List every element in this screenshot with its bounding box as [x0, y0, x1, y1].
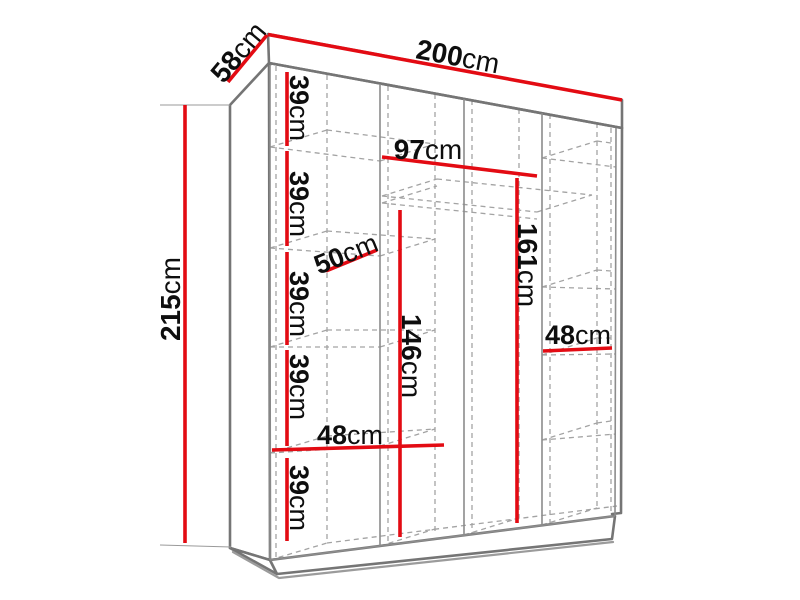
dim-right-width-label: 48cm [545, 320, 611, 350]
wardrobe-dimension-diagram: 200cm 58cm 215cm 39cm 39cm 39cm 39cm 39c… [0, 0, 800, 600]
dim-shelf-gap-4-label: 39cm [284, 354, 314, 420]
dim-middle-width-label: 97cm [394, 134, 462, 165]
dim-shelf-gap-2-label: 39cm [284, 171, 314, 237]
dim-left-width-label: 48cm [317, 420, 383, 450]
wardrobe-drawing: 200cm 58cm 215cm 39cm 39cm 39cm 39cm 39c… [0, 0, 800, 600]
shelves-right-column [542, 141, 616, 440]
dim-shelf-gap-3-label: 39cm [284, 271, 314, 337]
middle-top-shelf [382, 179, 592, 219]
dim-shelf-gap-1-label: 39cm [284, 75, 314, 141]
hidden-interior-edges [270, 48, 617, 560]
dim-height-label: 215cm [155, 257, 186, 341]
dim-hanging-mid-label: 146cm [397, 314, 428, 398]
dim-shelf-depth-label: 50cm [310, 228, 382, 281]
dim-shelf-gap-5-label: 39cm [284, 465, 314, 531]
dim-hanging-right-label: 161cm [513, 223, 544, 307]
